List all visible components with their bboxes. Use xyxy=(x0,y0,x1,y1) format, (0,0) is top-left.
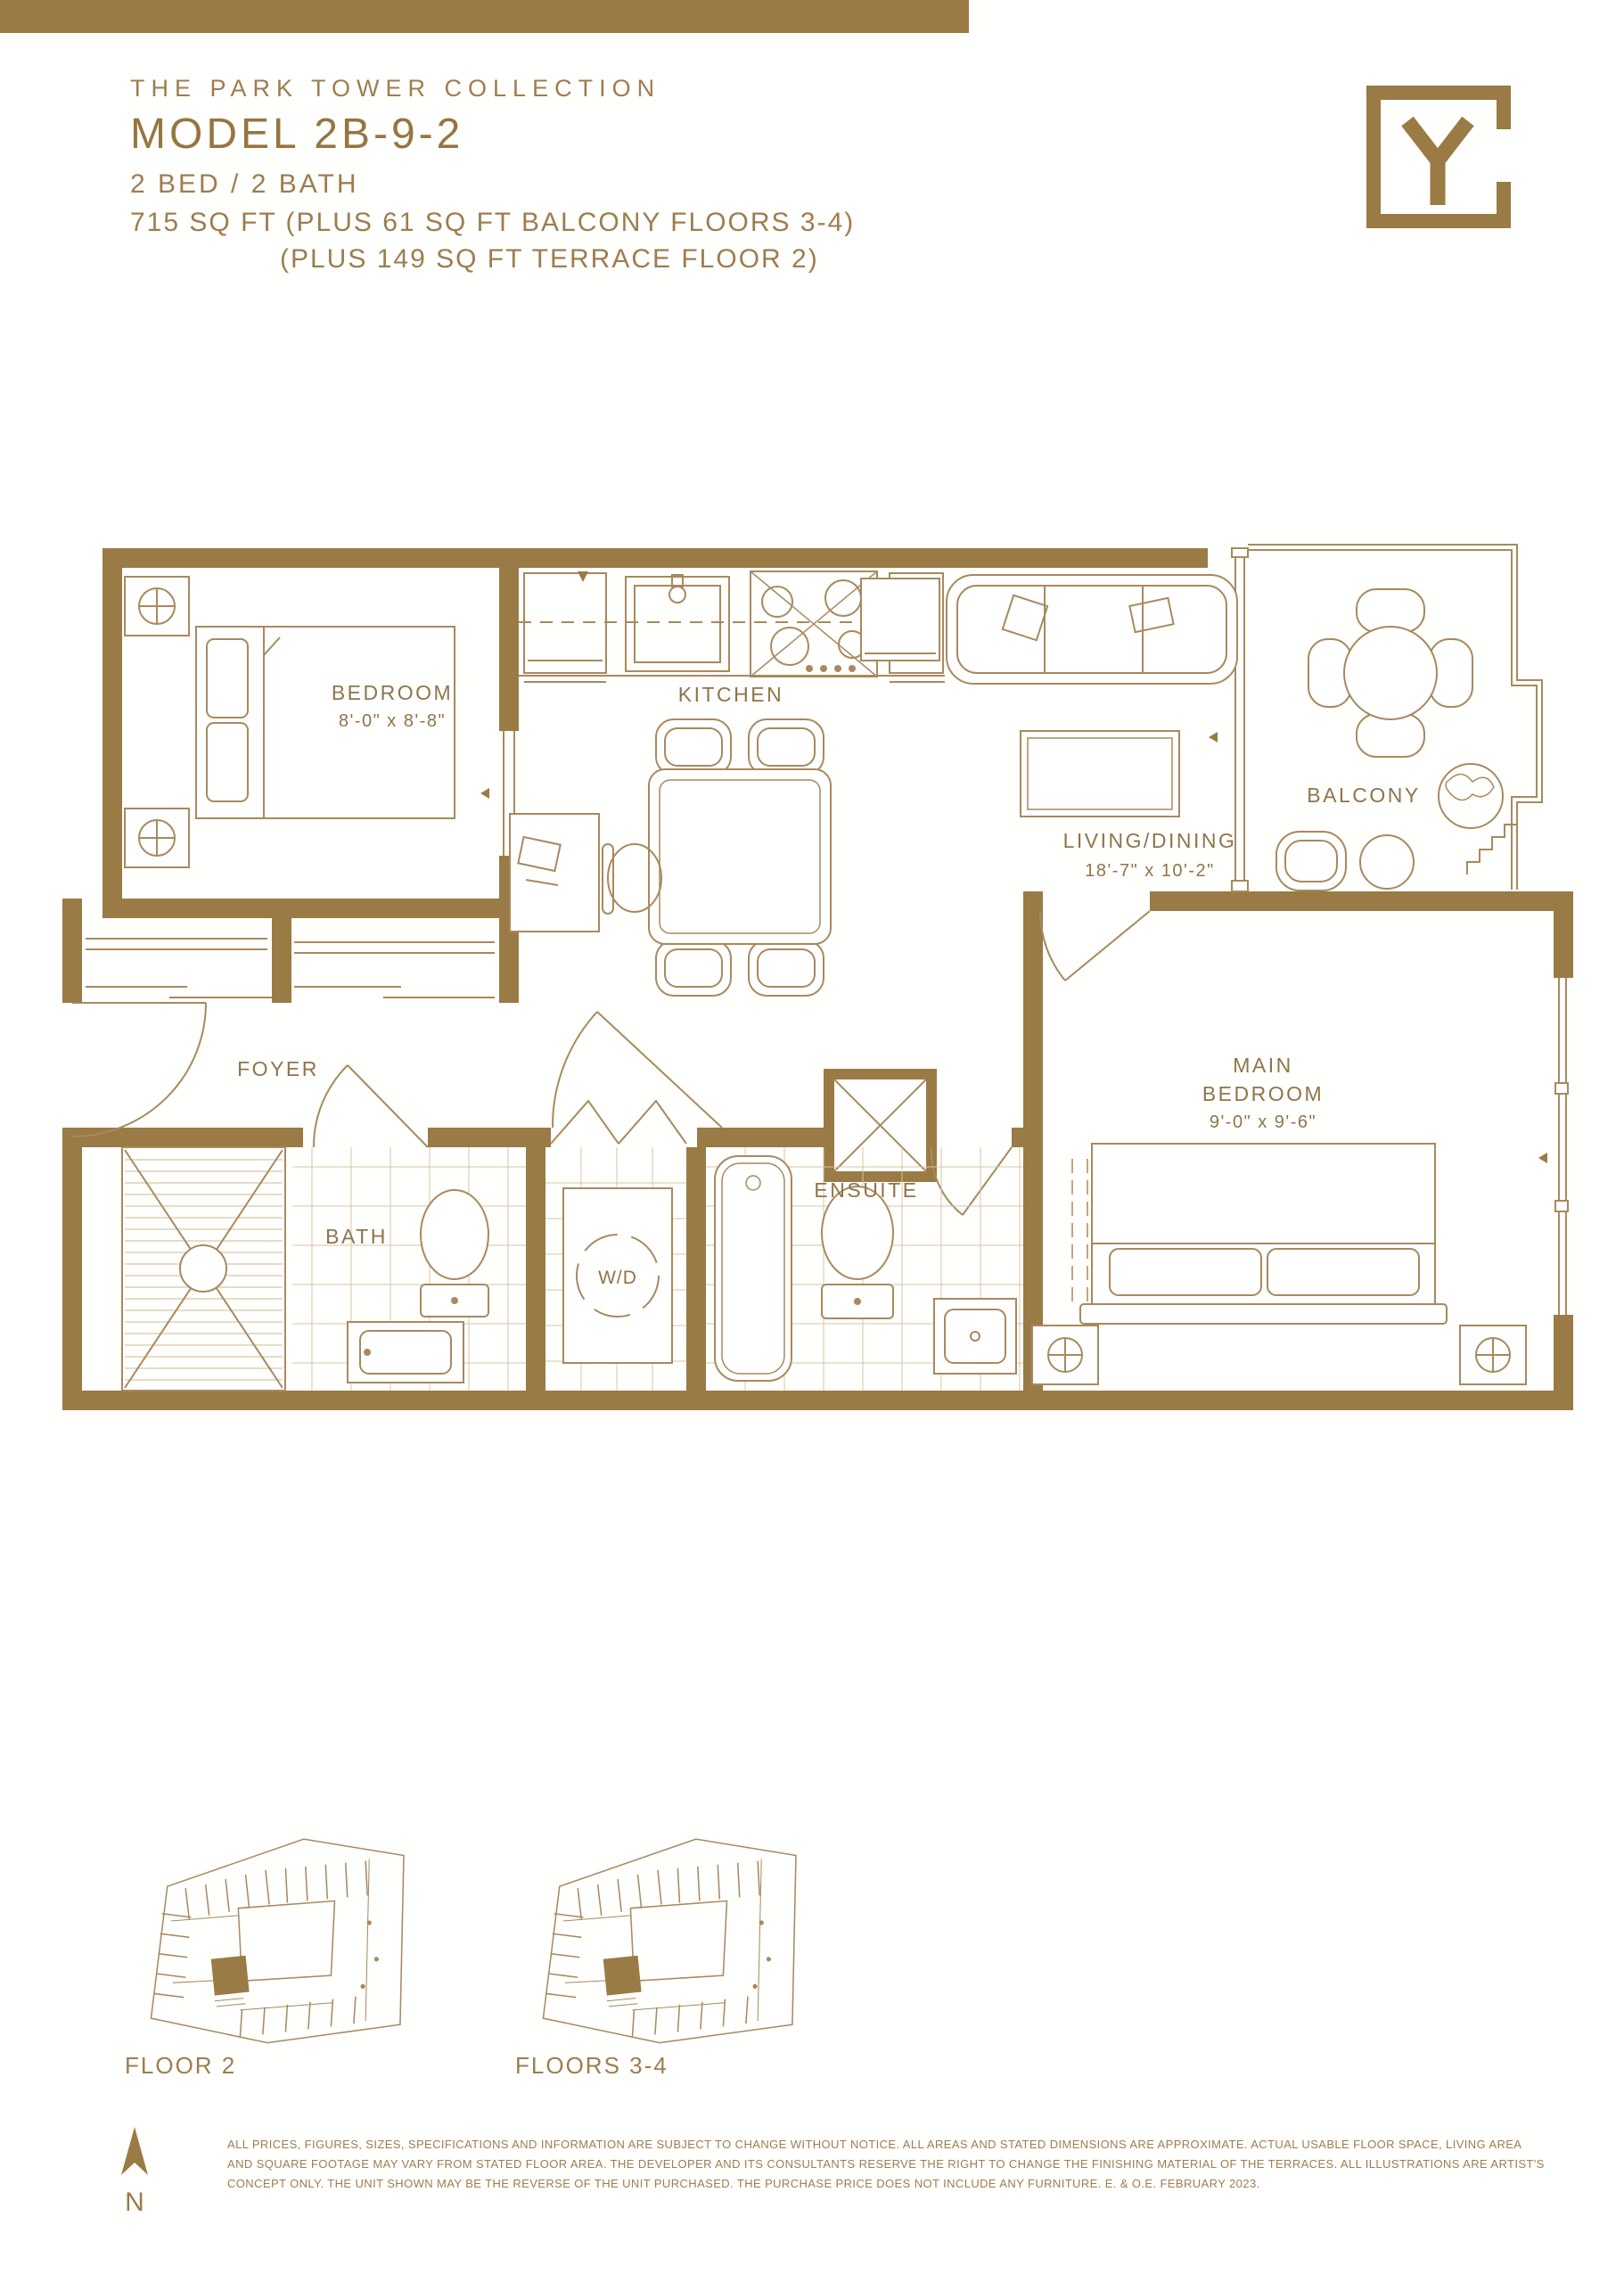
unit-floor-plan: W/D xyxy=(53,530,1587,1435)
bedroom-window-wall xyxy=(1555,978,1568,1315)
desk-and-chair xyxy=(510,814,661,932)
room-dims-bedroom: 8'-0" x 8'-8" xyxy=(339,711,446,731)
disclaimer-line-1: ALL PRICES, FIGURES, SIZES, SPECIFICATIO… xyxy=(227,2135,1564,2155)
disclaimer-line-3: CONCEPT ONLY. THE UNIT SHOWN MAY BE THE … xyxy=(227,2174,1564,2194)
room-label-living-dining: LIVING/DINING xyxy=(1063,829,1237,852)
collection-title: THE PARK TOWER COLLECTION xyxy=(130,75,855,103)
room-label-washer-dryer: W/D xyxy=(598,1268,637,1288)
keyplan-label-floor-2: FLOOR 2 xyxy=(125,2052,236,2080)
shaft xyxy=(829,1074,931,1177)
keyplan-floor-2 xyxy=(116,1832,419,2059)
room-label-kitchen: KITCHEN xyxy=(678,683,783,706)
room-label-foyer: FOYER xyxy=(237,1057,319,1080)
north-arrow-icon: N xyxy=(114,2123,155,2218)
north-label: N xyxy=(125,2188,144,2217)
room-label-ensuite: ENSUITE xyxy=(814,1178,918,1202)
disclaimer-line-2: AND SQUARE FOOTAGE MAY VARY FROM STATED … xyxy=(227,2155,1564,2174)
room-dims-living-dining: 18'-7" x 10'-2" xyxy=(1085,861,1215,881)
main-bedroom-furniture xyxy=(1032,1144,1526,1384)
top-accent-bar xyxy=(0,0,969,33)
room-label-main-bedroom-2: BEDROOM xyxy=(1202,1082,1324,1105)
dining-set xyxy=(649,719,831,996)
room-label-balcony: BALCONY xyxy=(1307,784,1420,807)
room-label-bedroom: BEDROOM xyxy=(332,681,453,704)
living-furniture xyxy=(861,575,1237,817)
bath-fixtures xyxy=(122,1147,526,1391)
washer-dryer: W/D xyxy=(545,1147,686,1391)
keyplan-floors-3-4 xyxy=(508,1832,811,2059)
room-label-main-bedroom-1: MAIN xyxy=(1233,1054,1293,1077)
disclaimer: ALL PRICES, FIGURES, SIZES, SPECIFICATIO… xyxy=(227,2135,1564,2194)
doors xyxy=(72,911,1150,1215)
header: THE PARK TOWER COLLECTION MODEL 2B-9-2 2… xyxy=(130,75,855,275)
keyplan-label-floors-3-4: FLOORS 3-4 xyxy=(515,2052,668,2080)
area-line-1: 715 SQ FT (PLUS 61 SQ FT BALCONY FLOORS … xyxy=(130,208,855,238)
park-tower-y-logo-icon xyxy=(1361,80,1514,234)
area-line-2: (PLUS 149 SQ FT TERRACE FLOOR 2) xyxy=(280,244,855,275)
bed-bath-config: 2 BED / 2 BATH xyxy=(130,169,855,200)
floorplan-brochure-page: THE PARK TOWER COLLECTION MODEL 2B-9-2 2… xyxy=(0,0,1624,2282)
model-title: MODEL 2B-9-2 xyxy=(130,110,855,159)
room-dims-main-bedroom: 9'-0" x 9'-6" xyxy=(1210,1112,1316,1132)
balcony-furniture xyxy=(1276,589,1503,891)
room-label-bath: BATH xyxy=(325,1225,388,1248)
